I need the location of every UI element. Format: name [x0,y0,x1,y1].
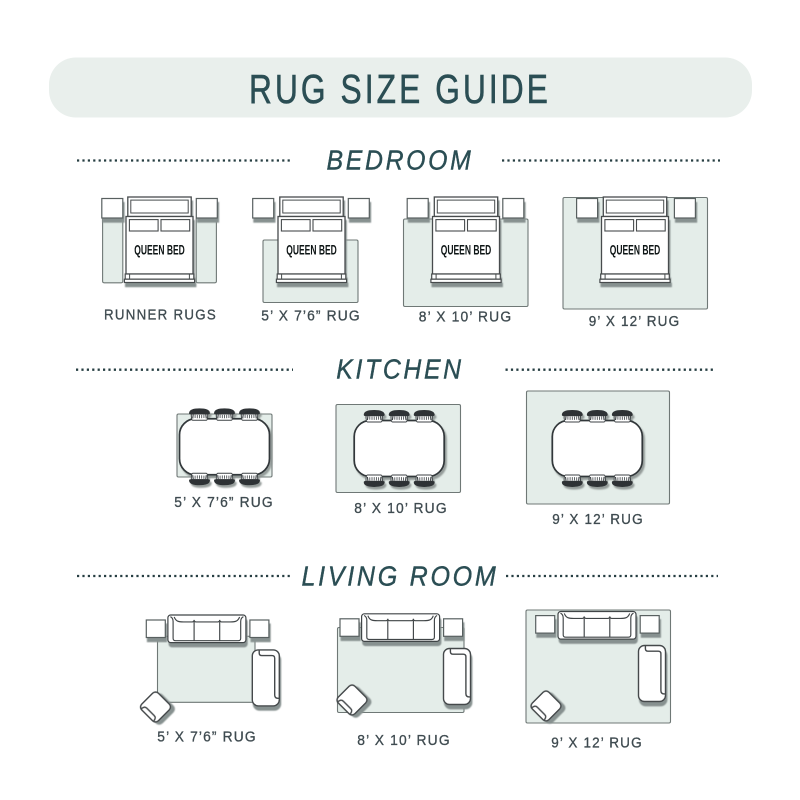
svg-text:8’ X 10’ RUG: 8’ X 10’ RUG [354,501,448,517]
svg-text:9’ X 12’ RUG: 9’ X 12’ RUG [551,736,643,752]
svg-text:8’ X 10’ RUG: 8’ X 10’ RUG [357,733,451,749]
svg-text:9’ X 12’ RUG: 9’ X 12’ RUG [552,512,644,528]
svg-text:9’ X 12’ RUG: 9’ X 12’ RUG [589,314,681,330]
svg-text:LIVING ROOM: LIVING ROOM [302,561,499,592]
svg-text:KITCHEN: KITCHEN [336,354,464,385]
svg-text:5’ X 7’6” RUG: 5’ X 7’6” RUG [261,309,361,325]
svg-text:RUG SIZE GUIDE: RUG SIZE GUIDE [249,66,551,112]
svg-text:5’ X 7’6” RUG: 5’ X 7’6” RUG [174,495,274,511]
svg-text:5’ X 7’6” RUG: 5’ X 7’6” RUG [157,730,257,746]
svg-text:8’ X 10’ RUG: 8’ X 10’ RUG [419,310,513,326]
svg-text:BEDROOM: BEDROOM [327,145,474,176]
svg-text:RUNNER RUGS: RUNNER RUGS [104,308,217,324]
